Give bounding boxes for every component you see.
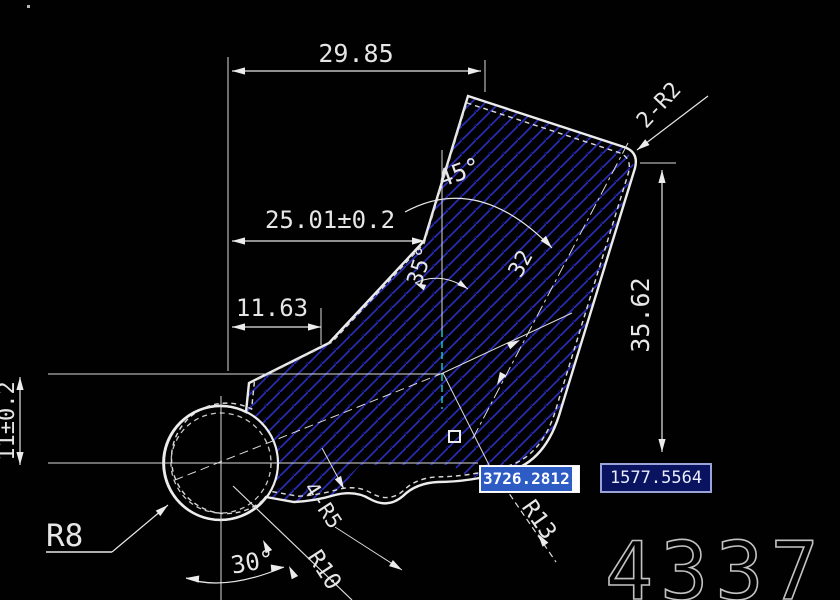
dim-text-height-right: 35.62 [626, 277, 655, 352]
arrow [308, 323, 321, 330]
cad-viewport[interactable]: 29.85 25.01±0.2 11.63 11±0.2 35.62 45° 3… [0, 0, 840, 600]
dim-text-angle-bottom: 30° [229, 545, 277, 580]
arrow [186, 574, 200, 582]
dim-text-corner-note: 2-R2 [632, 78, 686, 134]
dynamic-input-y[interactable]: 1577.5564 [600, 463, 712, 493]
pickbox-cursor [448, 430, 461, 443]
dynamic-input-x-value: 3726.2812 [481, 467, 572, 491]
arrow [232, 67, 245, 74]
arrow [286, 564, 298, 579]
dim-text-radius-corner: R13 [516, 496, 561, 545]
dim-text-width-mid: 25.01±0.2 [265, 206, 395, 234]
watermark-number: 4337 [605, 532, 826, 600]
section-hatch [0, 0, 840, 600]
dynamic-input-x[interactable]: 3726.2812 [479, 465, 580, 493]
arrow [635, 139, 650, 153]
screen-speck [27, 5, 30, 8]
dim-text-height-left: 11±0.2 [0, 381, 20, 460]
dim-text-radius-boss: R8 [46, 518, 83, 554]
dim-text-width-top: 29.85 [318, 39, 393, 68]
arrow [232, 237, 245, 244]
arrow [658, 439, 665, 452]
arrow [658, 170, 665, 183]
arrow [232, 323, 245, 330]
cad-drawing-canvas[interactable]: 29.85 25.01±0.2 11.63 11±0.2 35.62 45° 3… [0, 0, 840, 600]
dim-text-width-small: 11.63 [236, 294, 308, 322]
dynamic-input-y-value: 1577.5564 [610, 468, 702, 488]
arrow [468, 67, 481, 74]
arrow [389, 560, 404, 573]
